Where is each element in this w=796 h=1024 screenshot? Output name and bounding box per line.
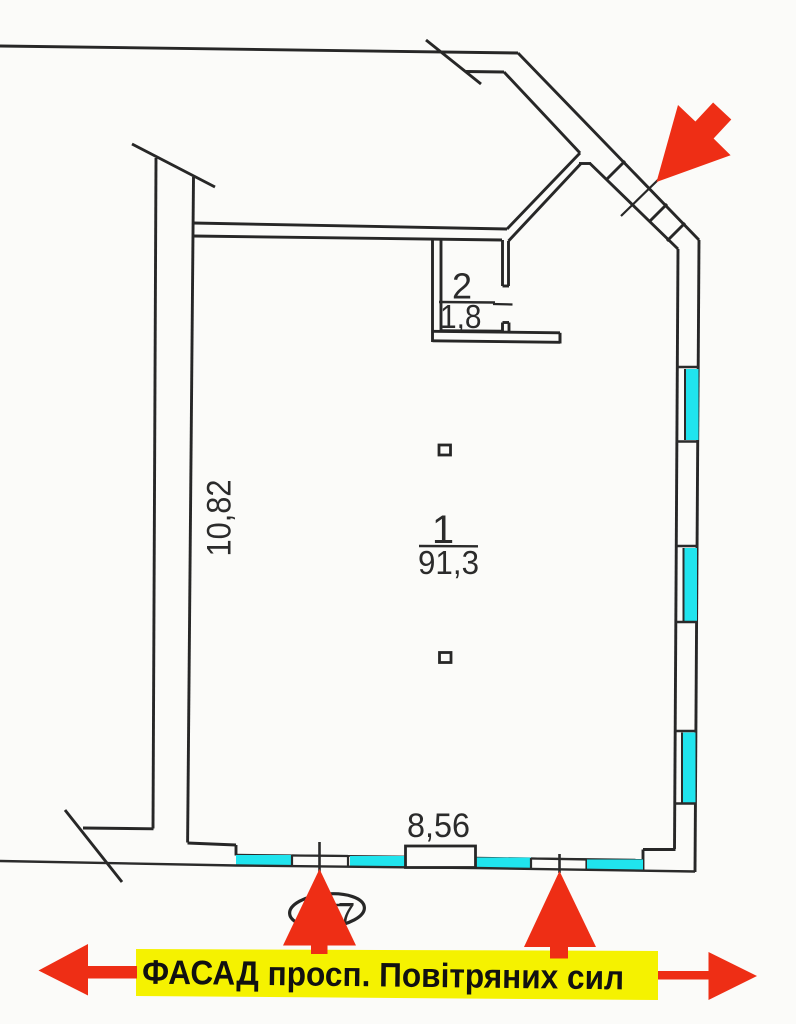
svg-text:91,3: 91,3 xyxy=(418,544,479,581)
svg-text:8,56: 8,56 xyxy=(407,807,470,845)
svg-text:1,8: 1,8 xyxy=(440,298,482,335)
svg-text:10,82: 10,82 xyxy=(201,480,239,557)
svg-text:ФАСАД просп. Повітряних сил: ФАСАД просп. Повітряних сил xyxy=(142,954,624,998)
